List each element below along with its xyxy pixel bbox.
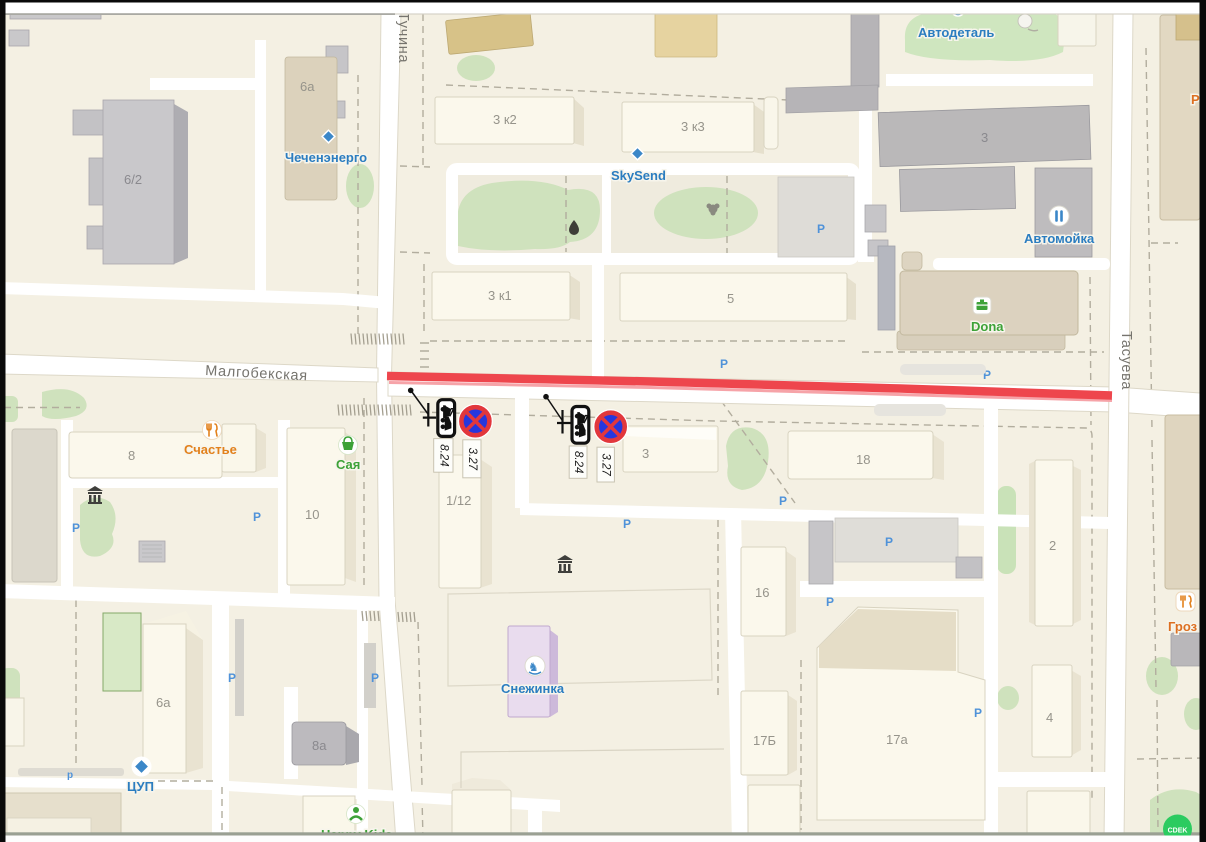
svg-text:1/12: 1/12 <box>446 493 471 508</box>
svg-text:4: 4 <box>1046 710 1053 725</box>
svg-text:3 к2: 3 к2 <box>493 112 517 127</box>
svg-text:P: P <box>720 357 728 371</box>
svg-text:ЦУП: ЦУП <box>127 779 154 794</box>
svg-text:P: P <box>371 671 379 685</box>
svg-text:3: 3 <box>981 130 988 145</box>
svg-text:P: P <box>253 510 261 524</box>
svg-text:Тасуева: Тасуева <box>1118 331 1134 390</box>
svg-text:P: P <box>817 222 825 236</box>
svg-text:2: 2 <box>1049 538 1056 553</box>
svg-text:Гроз: Гроз <box>1168 619 1198 634</box>
svg-text:10: 10 <box>305 507 319 522</box>
svg-text:8: 8 <box>128 448 135 463</box>
svg-text:3 к1: 3 к1 <box>488 288 512 303</box>
svg-text:P: P <box>974 706 982 720</box>
svg-text:3.27: 3.27 <box>600 453 612 476</box>
svg-text:Р: Р <box>1191 92 1200 107</box>
svg-text:3.27: 3.27 <box>466 448 478 471</box>
svg-text:Dona: Dona <box>971 319 1004 334</box>
svg-text:3: 3 <box>642 446 649 461</box>
svg-text:18: 18 <box>856 452 870 467</box>
svg-text:6/2: 6/2 <box>124 172 142 187</box>
svg-text:Тучина: Тучина <box>395 12 411 63</box>
svg-text:Сая: Сая <box>336 457 360 472</box>
svg-text:8.24: 8.24 <box>437 444 449 466</box>
svg-text:P: P <box>228 671 236 685</box>
svg-text:6а: 6а <box>300 79 315 94</box>
svg-text:17а: 17а <box>886 732 908 747</box>
svg-text:P: P <box>826 595 834 609</box>
svg-text:Автодеталь: Автодеталь <box>918 25 994 40</box>
svg-text:8.24: 8.24 <box>572 451 584 473</box>
svg-text:8а: 8а <box>312 738 327 753</box>
svg-text:SkySend: SkySend <box>611 168 666 183</box>
svg-text:5: 5 <box>727 291 734 306</box>
svg-text:Снежинка: Снежинка <box>501 681 565 696</box>
svg-text:Чеченэнерго: Чеченэнерго <box>285 150 367 165</box>
svg-text:3 к3: 3 к3 <box>681 119 705 134</box>
svg-text:16: 16 <box>755 585 769 600</box>
svg-text:P: P <box>623 517 631 531</box>
svg-text:P: P <box>779 494 787 508</box>
svg-text:P: P <box>72 521 80 535</box>
svg-text:CDEK: CDEK <box>1168 828 1188 835</box>
svg-text:Автомойка: Автомойка <box>1024 231 1095 246</box>
svg-text:17Б: 17Б <box>753 733 776 748</box>
svg-text:Счастье: Счастье <box>184 442 237 457</box>
svg-text:р: р <box>67 770 73 781</box>
svg-text:P: P <box>885 535 893 549</box>
svg-text:6а: 6а <box>156 695 171 710</box>
